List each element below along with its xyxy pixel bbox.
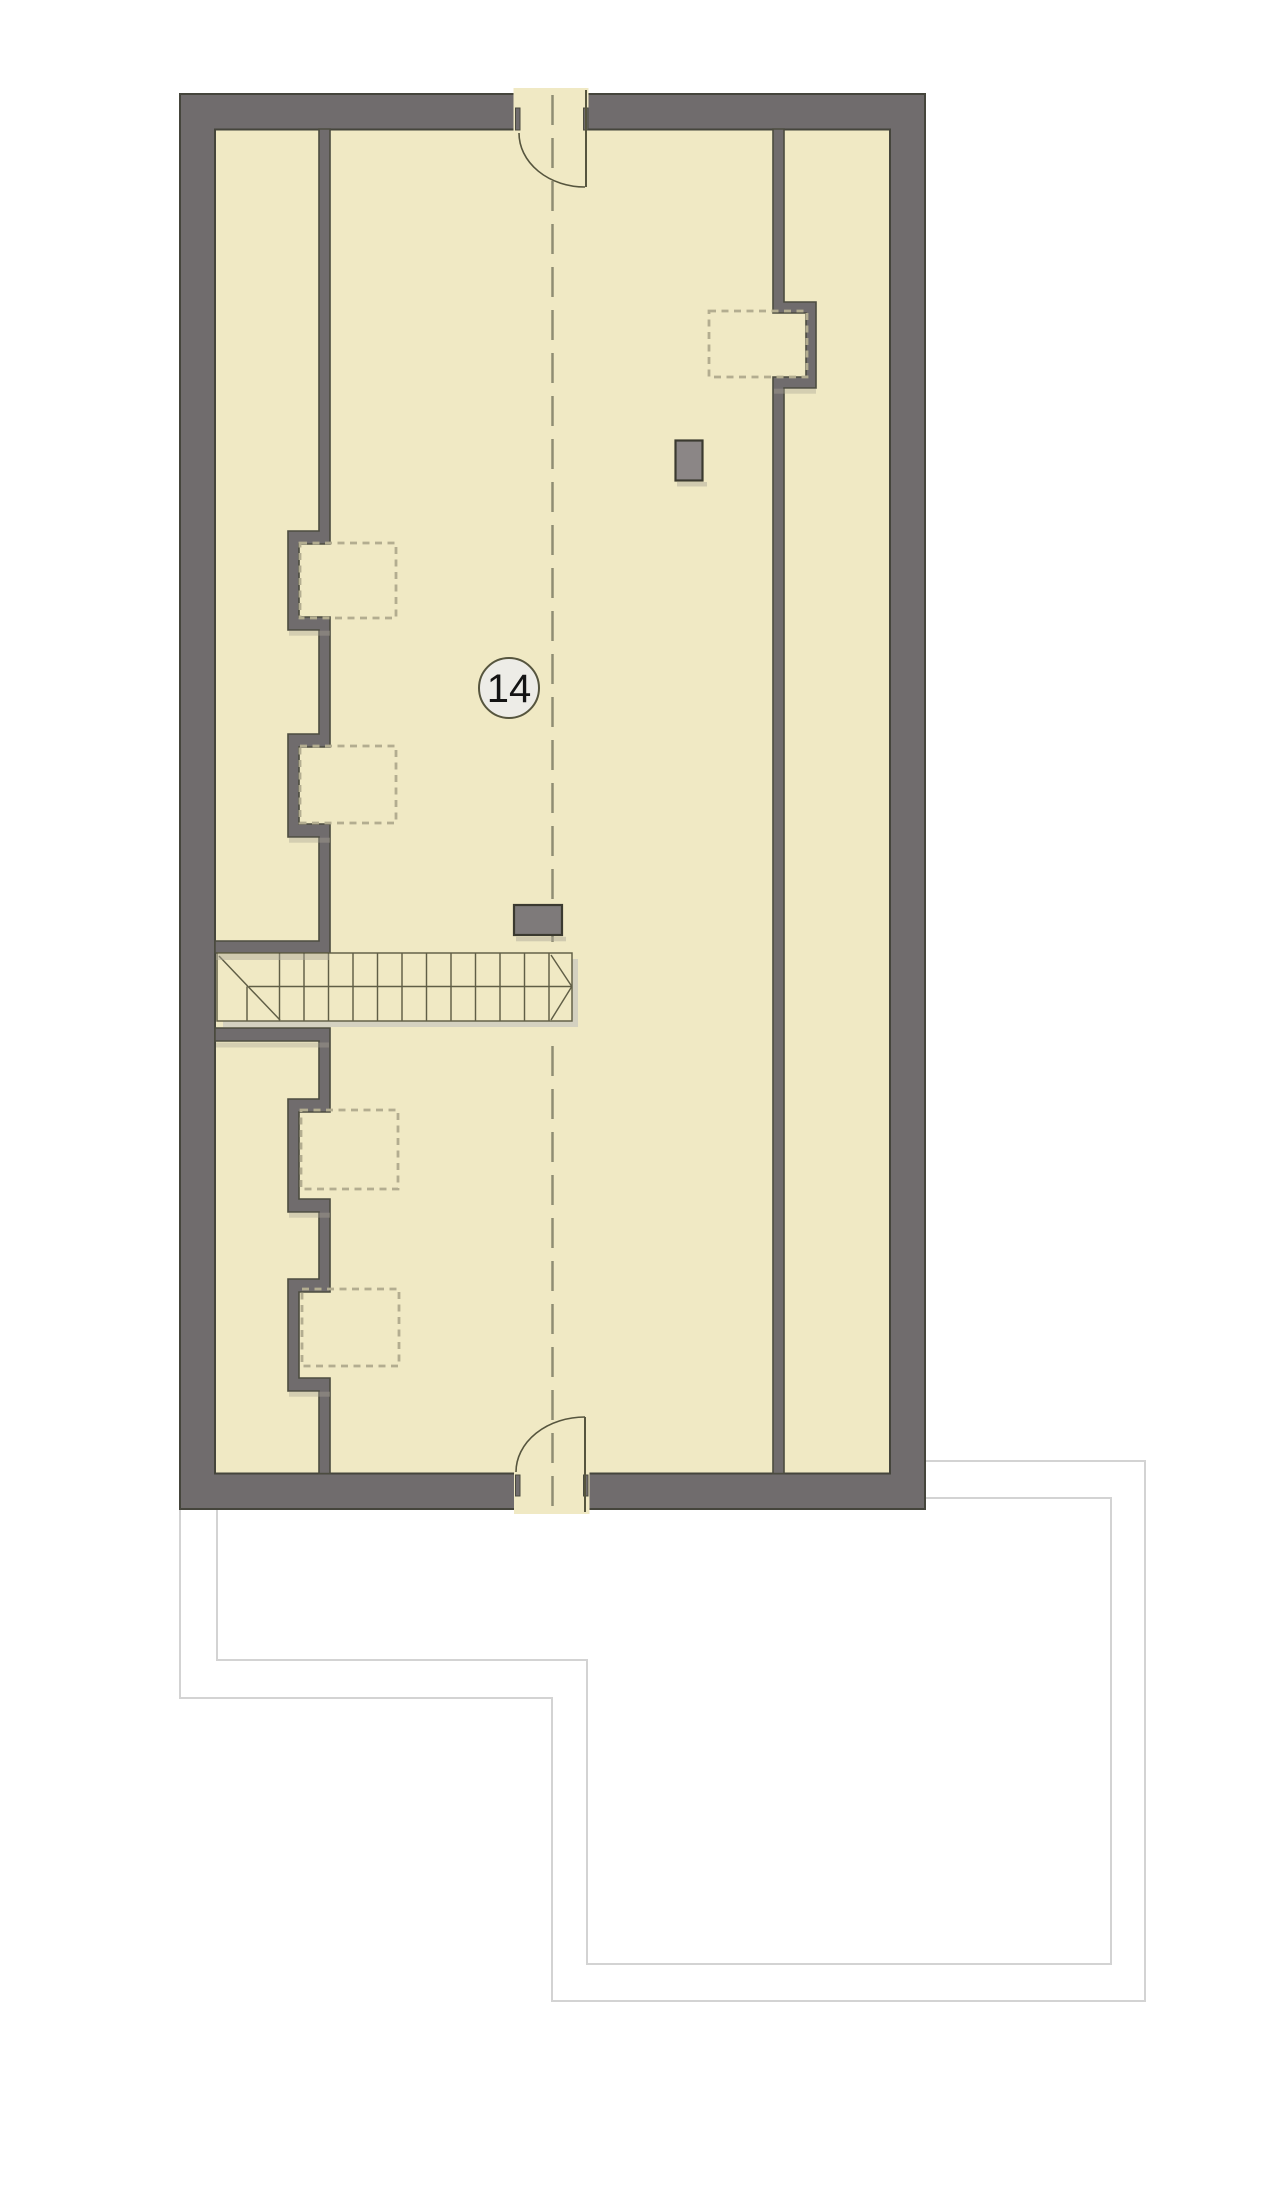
svg-text:14: 14 [487,667,532,711]
